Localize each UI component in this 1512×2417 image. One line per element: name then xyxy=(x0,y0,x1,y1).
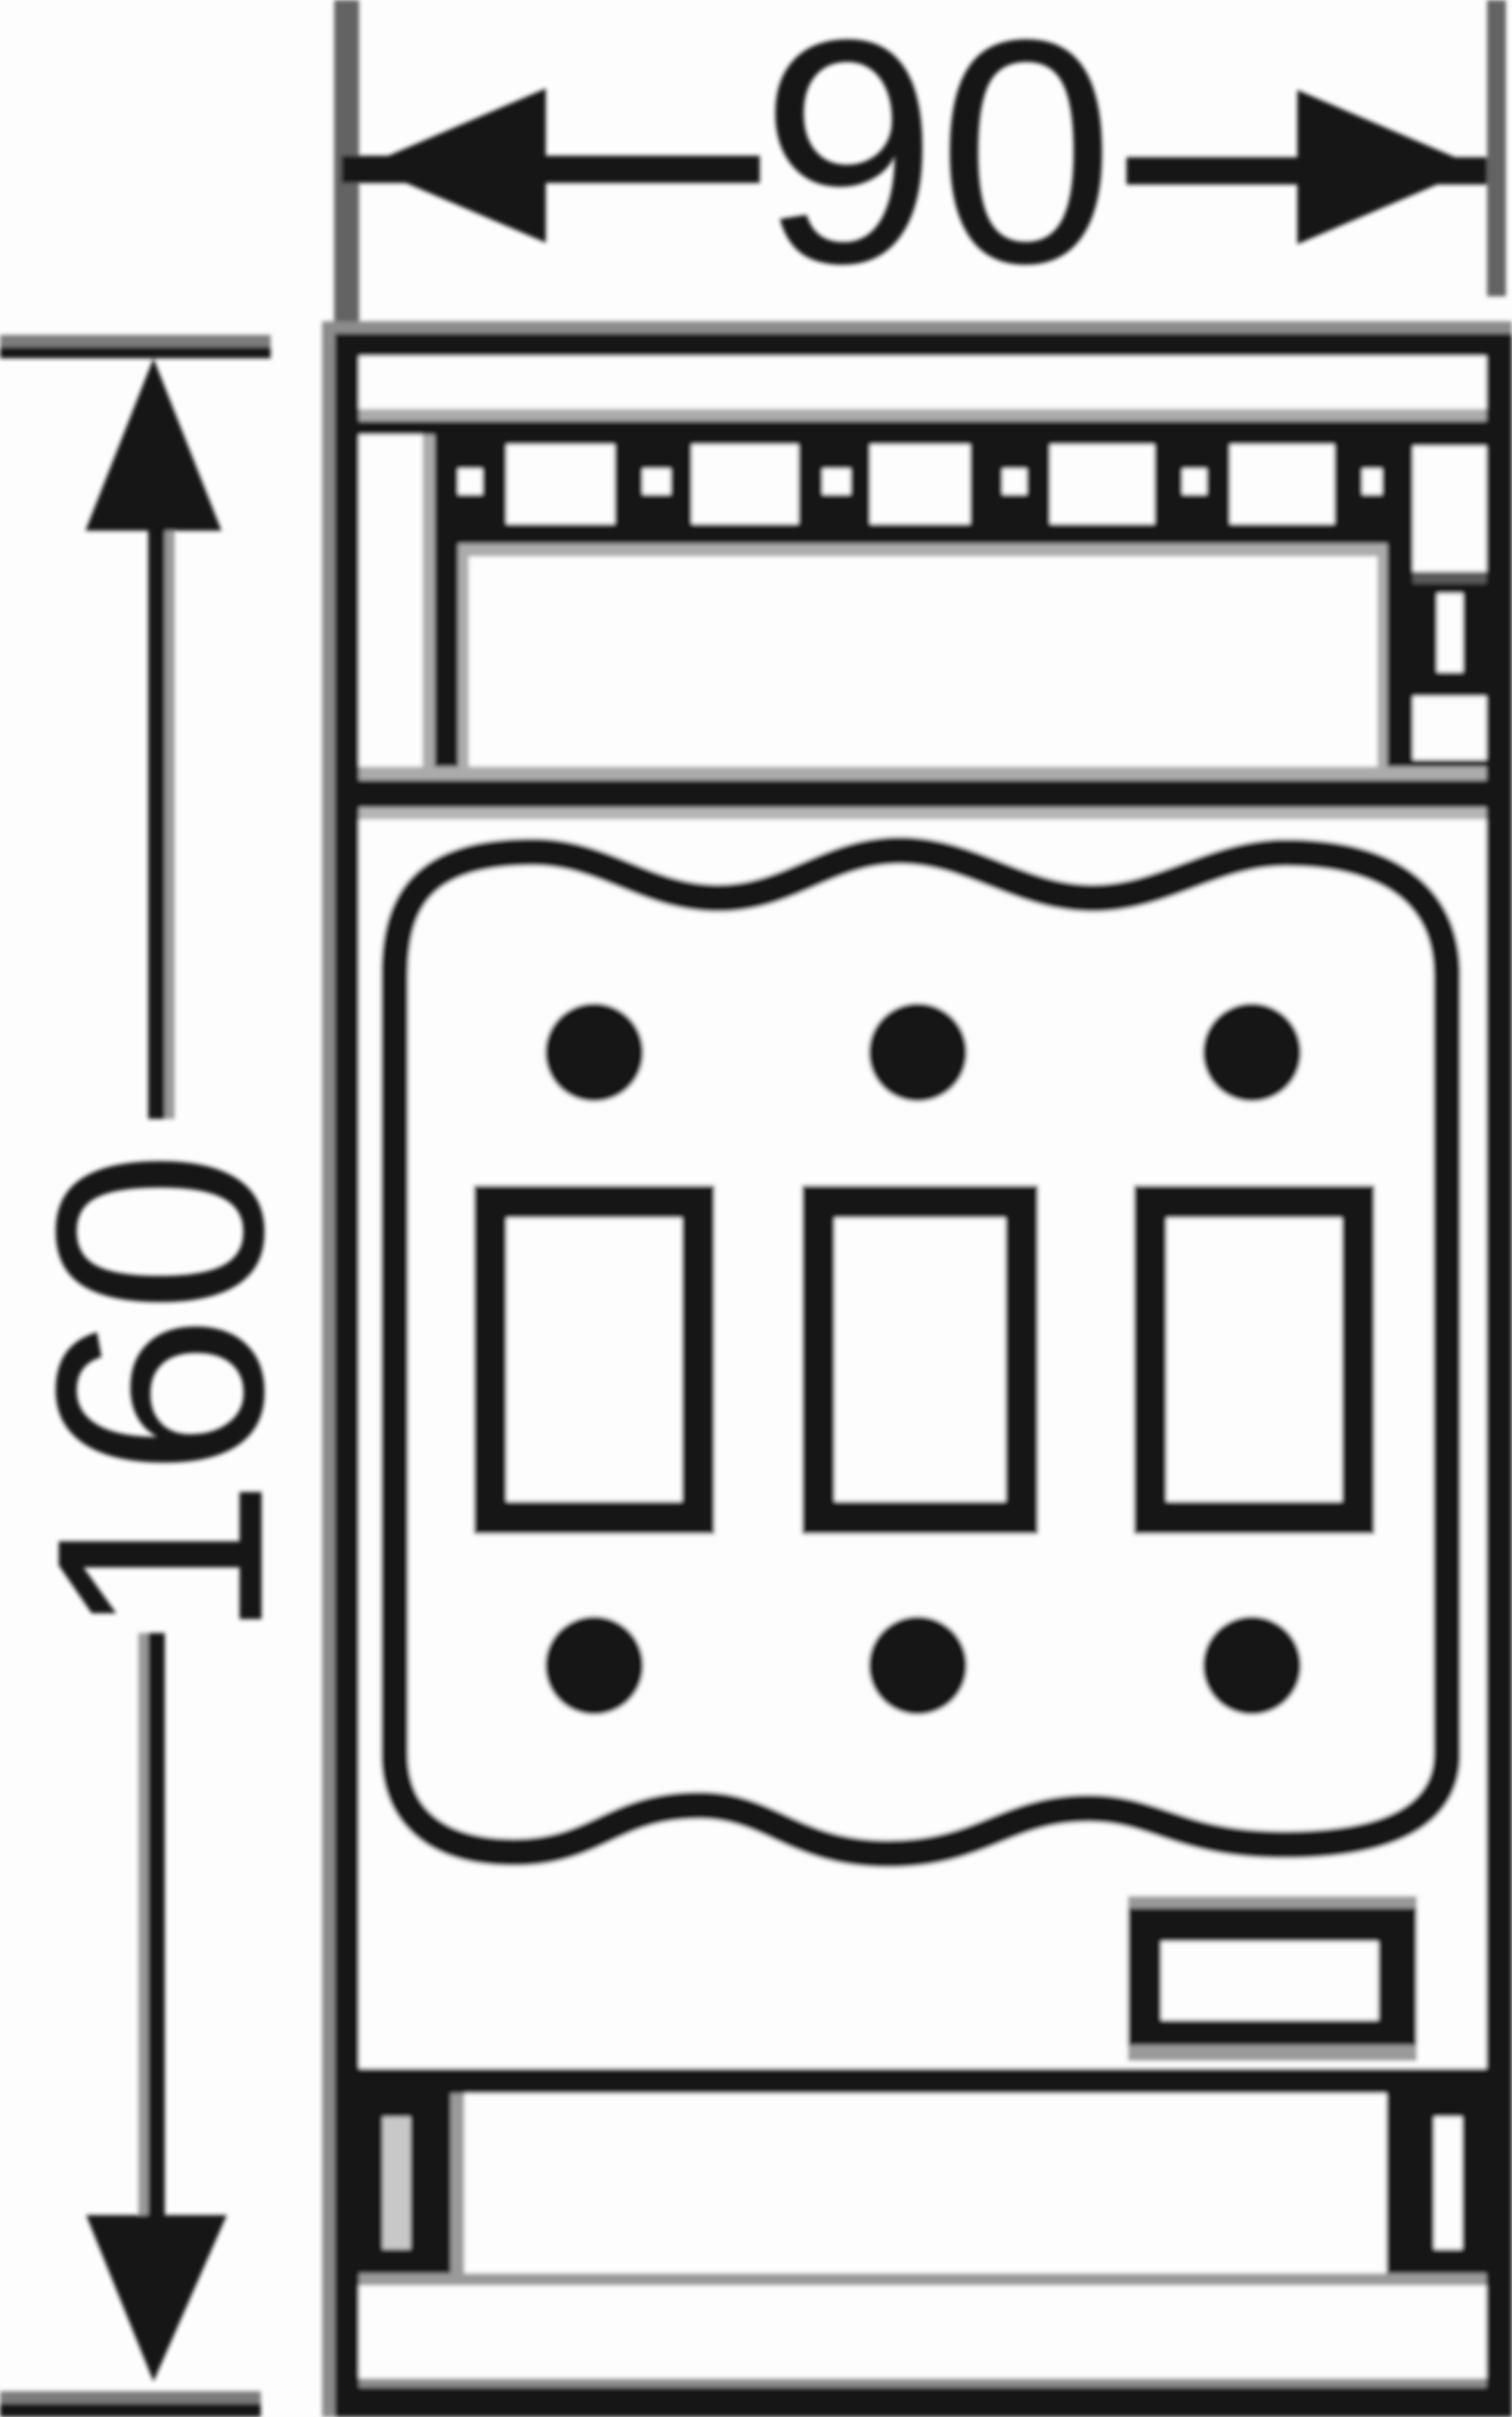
svg-text:160: 160 xyxy=(0,1150,324,1642)
svg-text:90: 90 xyxy=(761,0,1114,330)
